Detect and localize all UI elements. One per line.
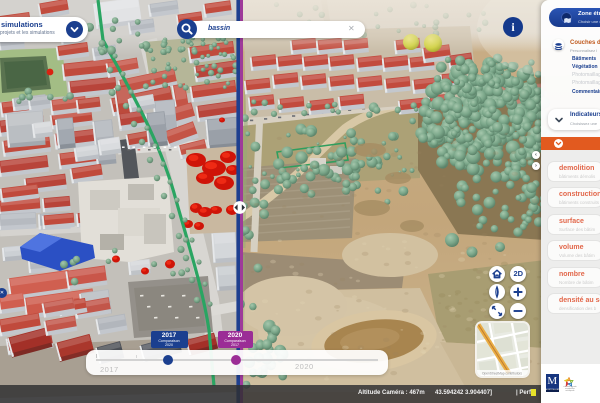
svg-text:OpenStreetMap contributors: OpenStreetMap contributors [482, 372, 522, 376]
